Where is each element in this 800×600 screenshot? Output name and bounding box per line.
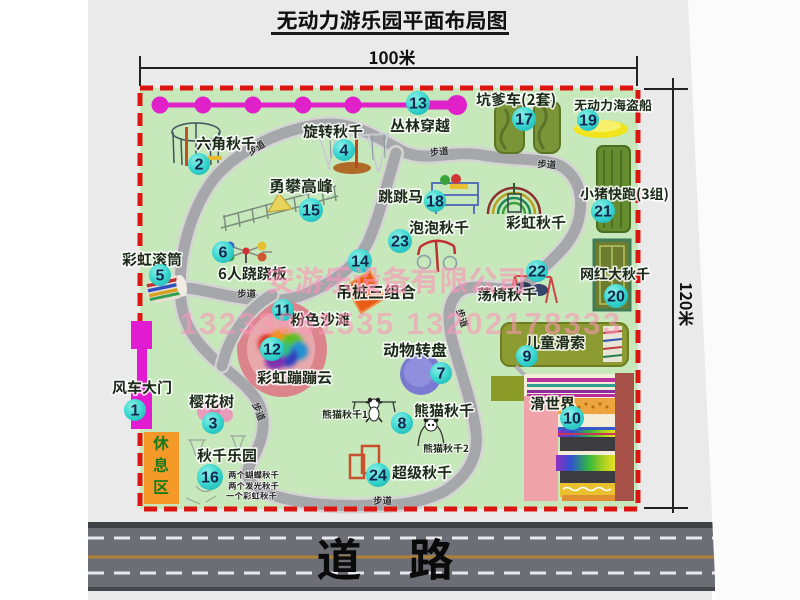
svg-text:17: 17 xyxy=(515,112,533,129)
svg-text:22: 22 xyxy=(528,264,546,281)
svg-text:19: 19 xyxy=(579,113,597,130)
svg-text:18: 18 xyxy=(426,194,444,211)
svg-text:24: 24 xyxy=(369,468,387,485)
svg-text:20: 20 xyxy=(607,289,625,306)
svg-text:3: 3 xyxy=(209,416,218,433)
svg-text:12: 12 xyxy=(263,342,281,359)
svg-text:16: 16 xyxy=(201,470,219,487)
svg-text:13233861535 13202178333: 13233861535 13202178333 xyxy=(179,306,622,341)
svg-text:23: 23 xyxy=(391,234,409,251)
svg-text:1: 1 xyxy=(131,403,140,420)
svg-text:9: 9 xyxy=(523,349,532,366)
svg-text:6: 6 xyxy=(219,245,228,262)
svg-text:2: 2 xyxy=(195,157,204,174)
svg-text:10: 10 xyxy=(563,411,581,428)
svg-text:8: 8 xyxy=(398,416,407,433)
svg-text:4: 4 xyxy=(340,143,349,160)
svg-text:5: 5 xyxy=(156,268,165,285)
svg-text:13: 13 xyxy=(409,96,427,113)
svg-text:7: 7 xyxy=(437,366,446,383)
svg-text:21: 21 xyxy=(594,204,612,221)
svg-text:15: 15 xyxy=(302,203,320,220)
